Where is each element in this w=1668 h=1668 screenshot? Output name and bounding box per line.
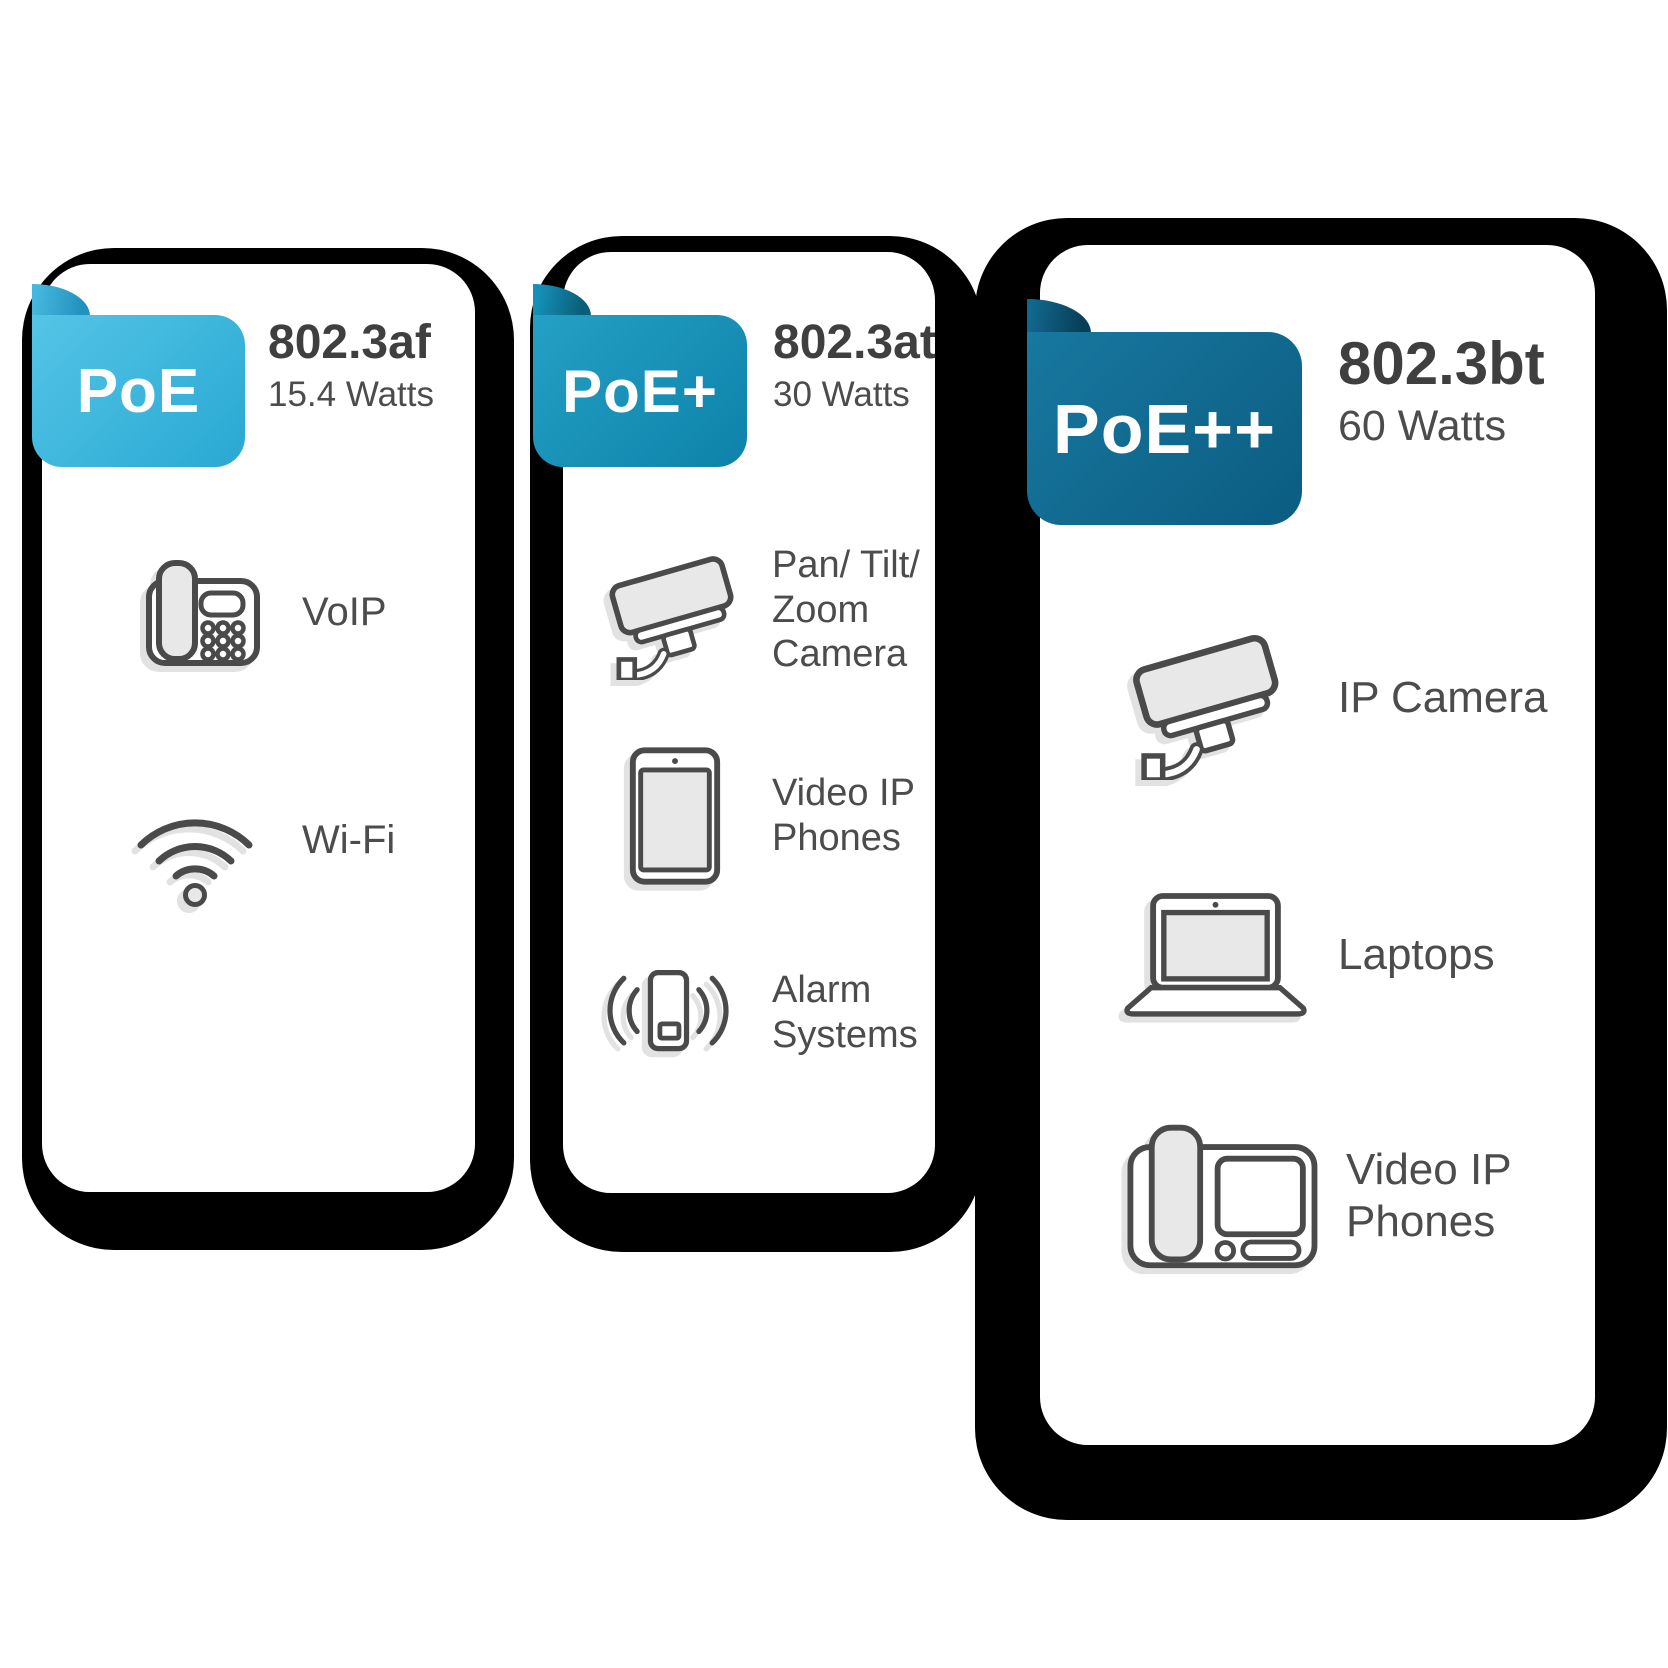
device-label: Alarm Systems xyxy=(772,968,918,1058)
wifi-icon xyxy=(128,773,263,908)
poe-ribbon: PoE xyxy=(32,315,245,467)
device-row: Laptops xyxy=(1118,886,1495,1023)
standard-watts: 60 Watts xyxy=(1338,404,1545,449)
standard-watts: 30 Watts xyxy=(773,377,936,414)
device-label: Pan/ Tilt/ Zoom Camera xyxy=(772,543,920,677)
device-label: Wi-Fi xyxy=(302,817,395,864)
laptop-icon xyxy=(1118,886,1313,1023)
poe-plus-plus-ribbon: PoE++ xyxy=(1027,332,1302,525)
device-row: VoIP xyxy=(135,545,387,680)
device-label: IP Camera xyxy=(1338,672,1548,724)
device-row: Video IP Phones xyxy=(1116,1118,1512,1273)
device-label: Video IP Phones xyxy=(772,771,915,861)
standard-name: 802.3at xyxy=(773,318,936,368)
standard-header: 802.3bt 60 Watts xyxy=(1338,332,1545,449)
standard-header: 802.3at 30 Watts xyxy=(773,318,936,414)
device-label: Video IP Phones xyxy=(1346,1144,1512,1248)
standard-watts: 15.4 Watts xyxy=(268,377,434,414)
device-row: Alarm Systems xyxy=(588,965,918,1060)
poe-plus-ribbon: PoE+ xyxy=(533,315,747,467)
video-ip-phone-icon xyxy=(1116,1118,1326,1273)
standard-header: 802.3af 15.4 Watts xyxy=(268,318,434,414)
standard-name: 802.3af xyxy=(268,318,434,368)
device-row: Pan/ Tilt/ Zoom Camera xyxy=(598,540,920,680)
device-row: Video IP Phones xyxy=(625,746,915,886)
cctv-camera-icon xyxy=(1120,616,1295,780)
cctv-camera-icon xyxy=(598,540,748,680)
tablet-icon xyxy=(625,746,725,886)
ribbon-label: PoE xyxy=(77,356,201,427)
poe-standards-infographic: PoE 802.3af 15.4 Watts VoIP Wi-Fi xyxy=(0,0,1668,1668)
device-label: VoIP xyxy=(302,589,387,636)
device-row: Wi-Fi xyxy=(128,773,395,908)
device-label: Laptops xyxy=(1338,929,1495,981)
device-row: IP Camera xyxy=(1120,616,1548,780)
ribbon-label: PoE++ xyxy=(1053,389,1276,469)
desk-phone-icon xyxy=(135,545,270,680)
alarm-icon xyxy=(588,965,748,1060)
standard-name: 802.3bt xyxy=(1338,332,1545,395)
ribbon-label: PoE+ xyxy=(562,357,718,426)
